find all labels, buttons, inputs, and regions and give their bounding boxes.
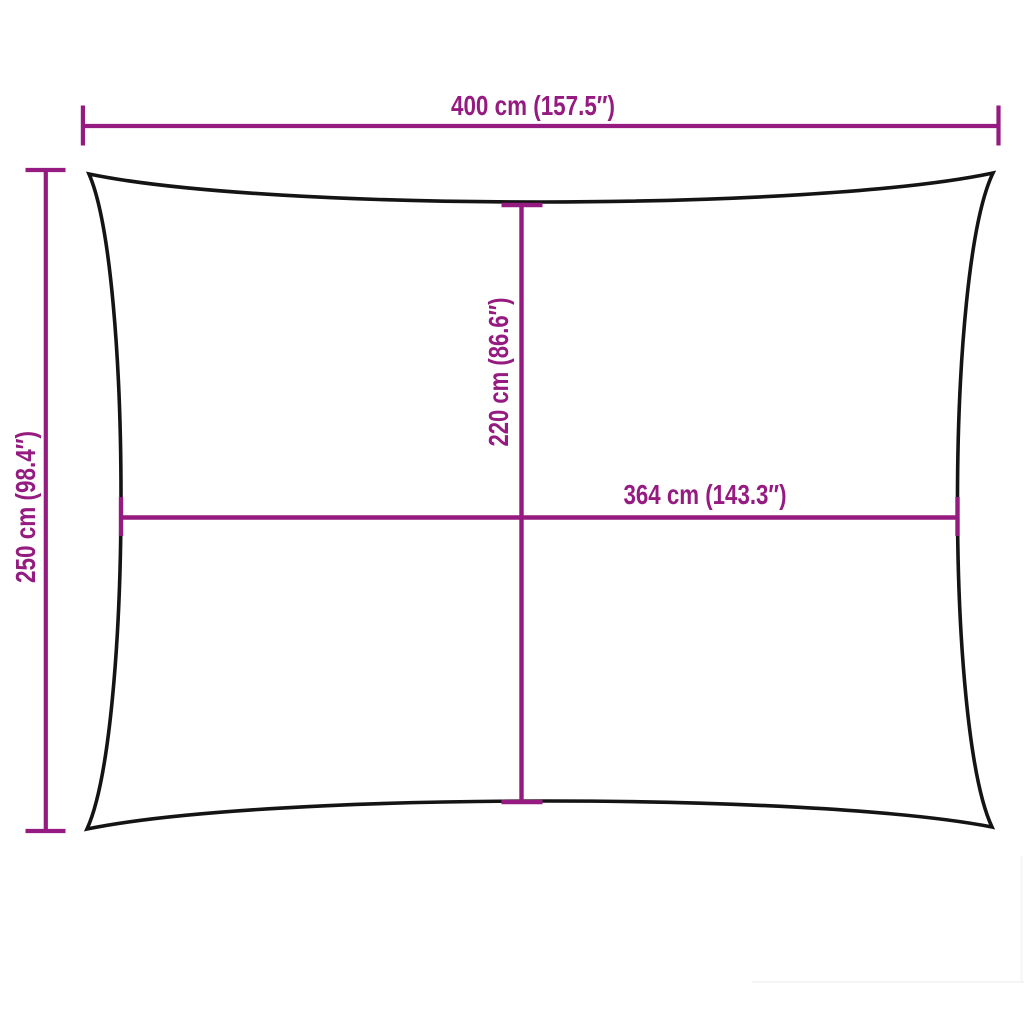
svg-text:364 cm (143.3″): 364 cm (143.3″): [624, 479, 787, 510]
svg-text:250 cm (98.4″): 250 cm (98.4″): [10, 431, 41, 583]
svg-text:400 cm (157.5″): 400 cm (157.5″): [451, 90, 615, 121]
svg-text:220 cm (86.6″): 220 cm (86.6″): [483, 298, 514, 447]
